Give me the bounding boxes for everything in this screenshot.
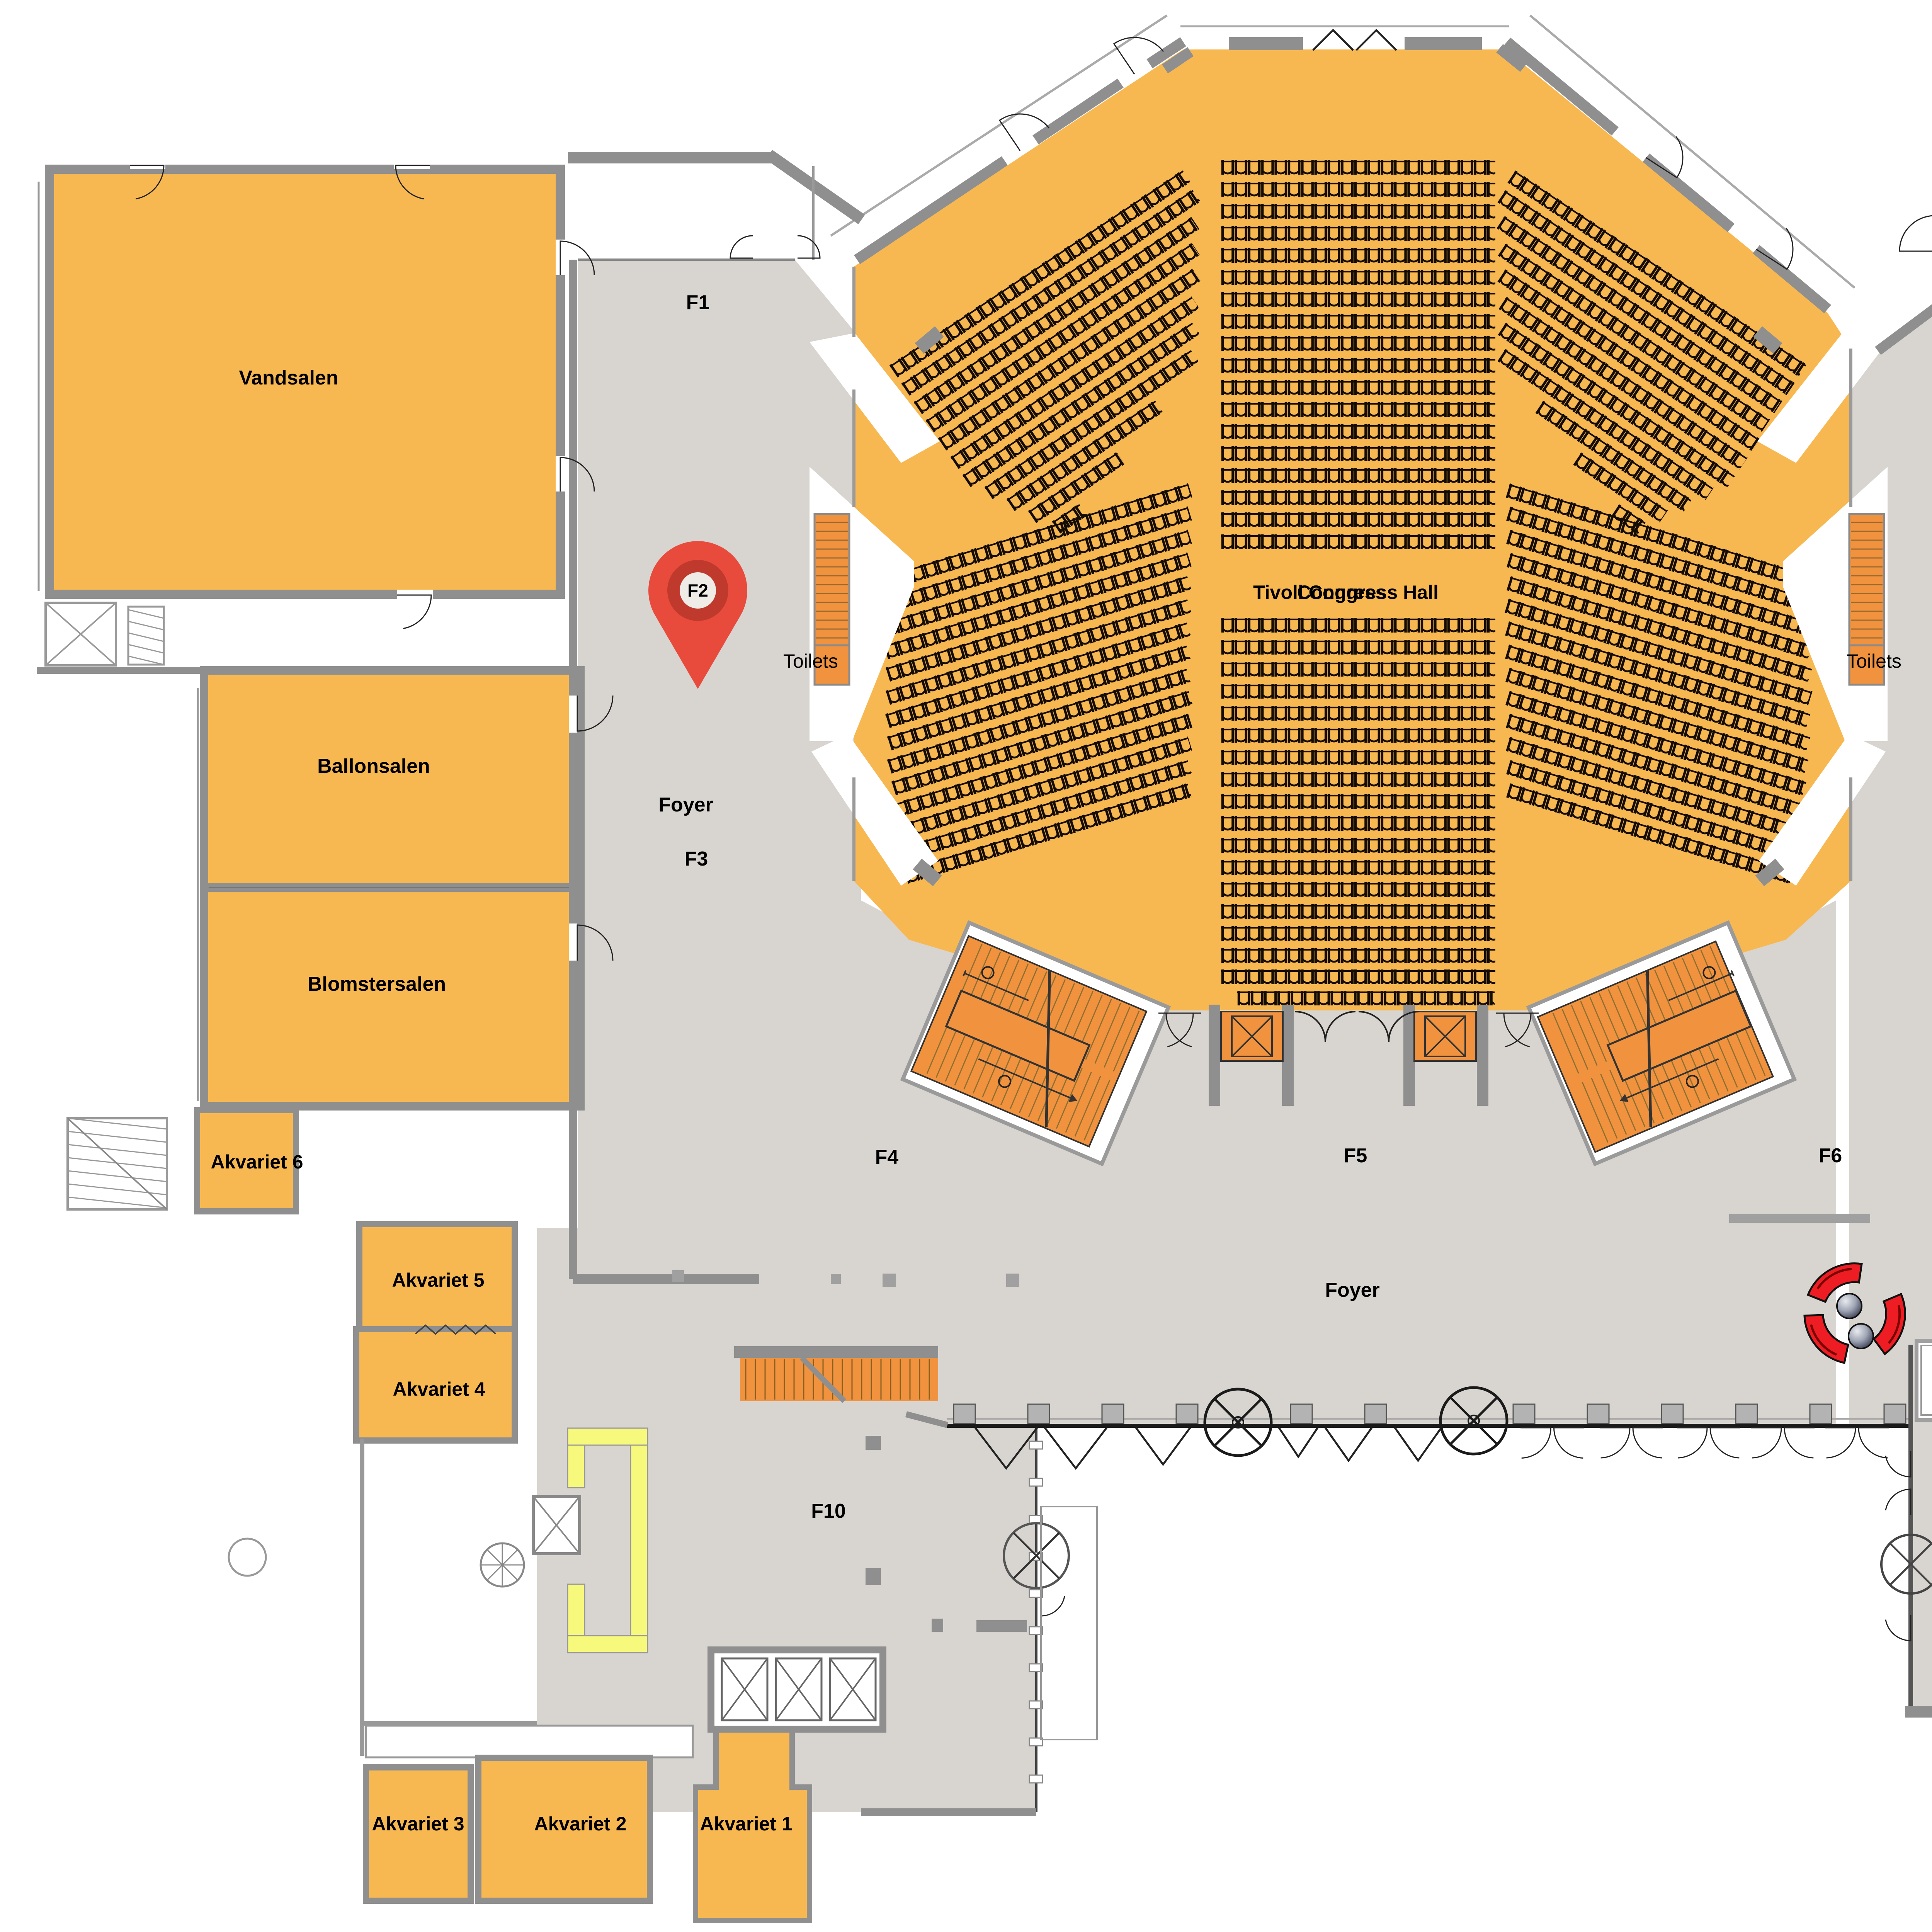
svg-text:F6: F6 bbox=[1819, 1145, 1842, 1167]
svg-text:Akvariet 2: Akvariet 2 bbox=[534, 1813, 626, 1835]
svg-text:Ballonsalen: Ballonsalen bbox=[317, 755, 430, 777]
svg-text:Akvariet 3: Akvariet 3 bbox=[372, 1813, 464, 1835]
svg-text:Foyer: Foyer bbox=[1325, 1279, 1380, 1301]
svg-text:F2: F2 bbox=[687, 580, 708, 600]
svg-text:Foyer: Foyer bbox=[658, 794, 713, 816]
svg-text:F1: F1 bbox=[686, 291, 710, 314]
svg-text:Vandsalen: Vandsalen bbox=[239, 367, 338, 389]
svg-text:Akvariet 1: Akvariet 1 bbox=[700, 1813, 792, 1835]
svg-text:Toilets: Toilets bbox=[783, 650, 838, 672]
svg-text:F3: F3 bbox=[685, 848, 708, 870]
svg-text:Blomstersalen: Blomstersalen bbox=[308, 973, 446, 995]
svg-text:F5: F5 bbox=[1344, 1145, 1367, 1167]
svg-text:Toilets: Toilets bbox=[1847, 650, 1901, 672]
svg-text:Akvariet 5: Akvariet 5 bbox=[392, 1269, 484, 1291]
svg-text:F4: F4 bbox=[875, 1146, 899, 1168]
svg-text:Akvariet 6: Akvariet 6 bbox=[211, 1151, 303, 1173]
svg-text:F10: F10 bbox=[811, 1500, 846, 1522]
svg-text:Congress: Congress bbox=[1297, 582, 1386, 603]
svg-text:Akvariet 4: Akvariet 4 bbox=[393, 1378, 485, 1400]
